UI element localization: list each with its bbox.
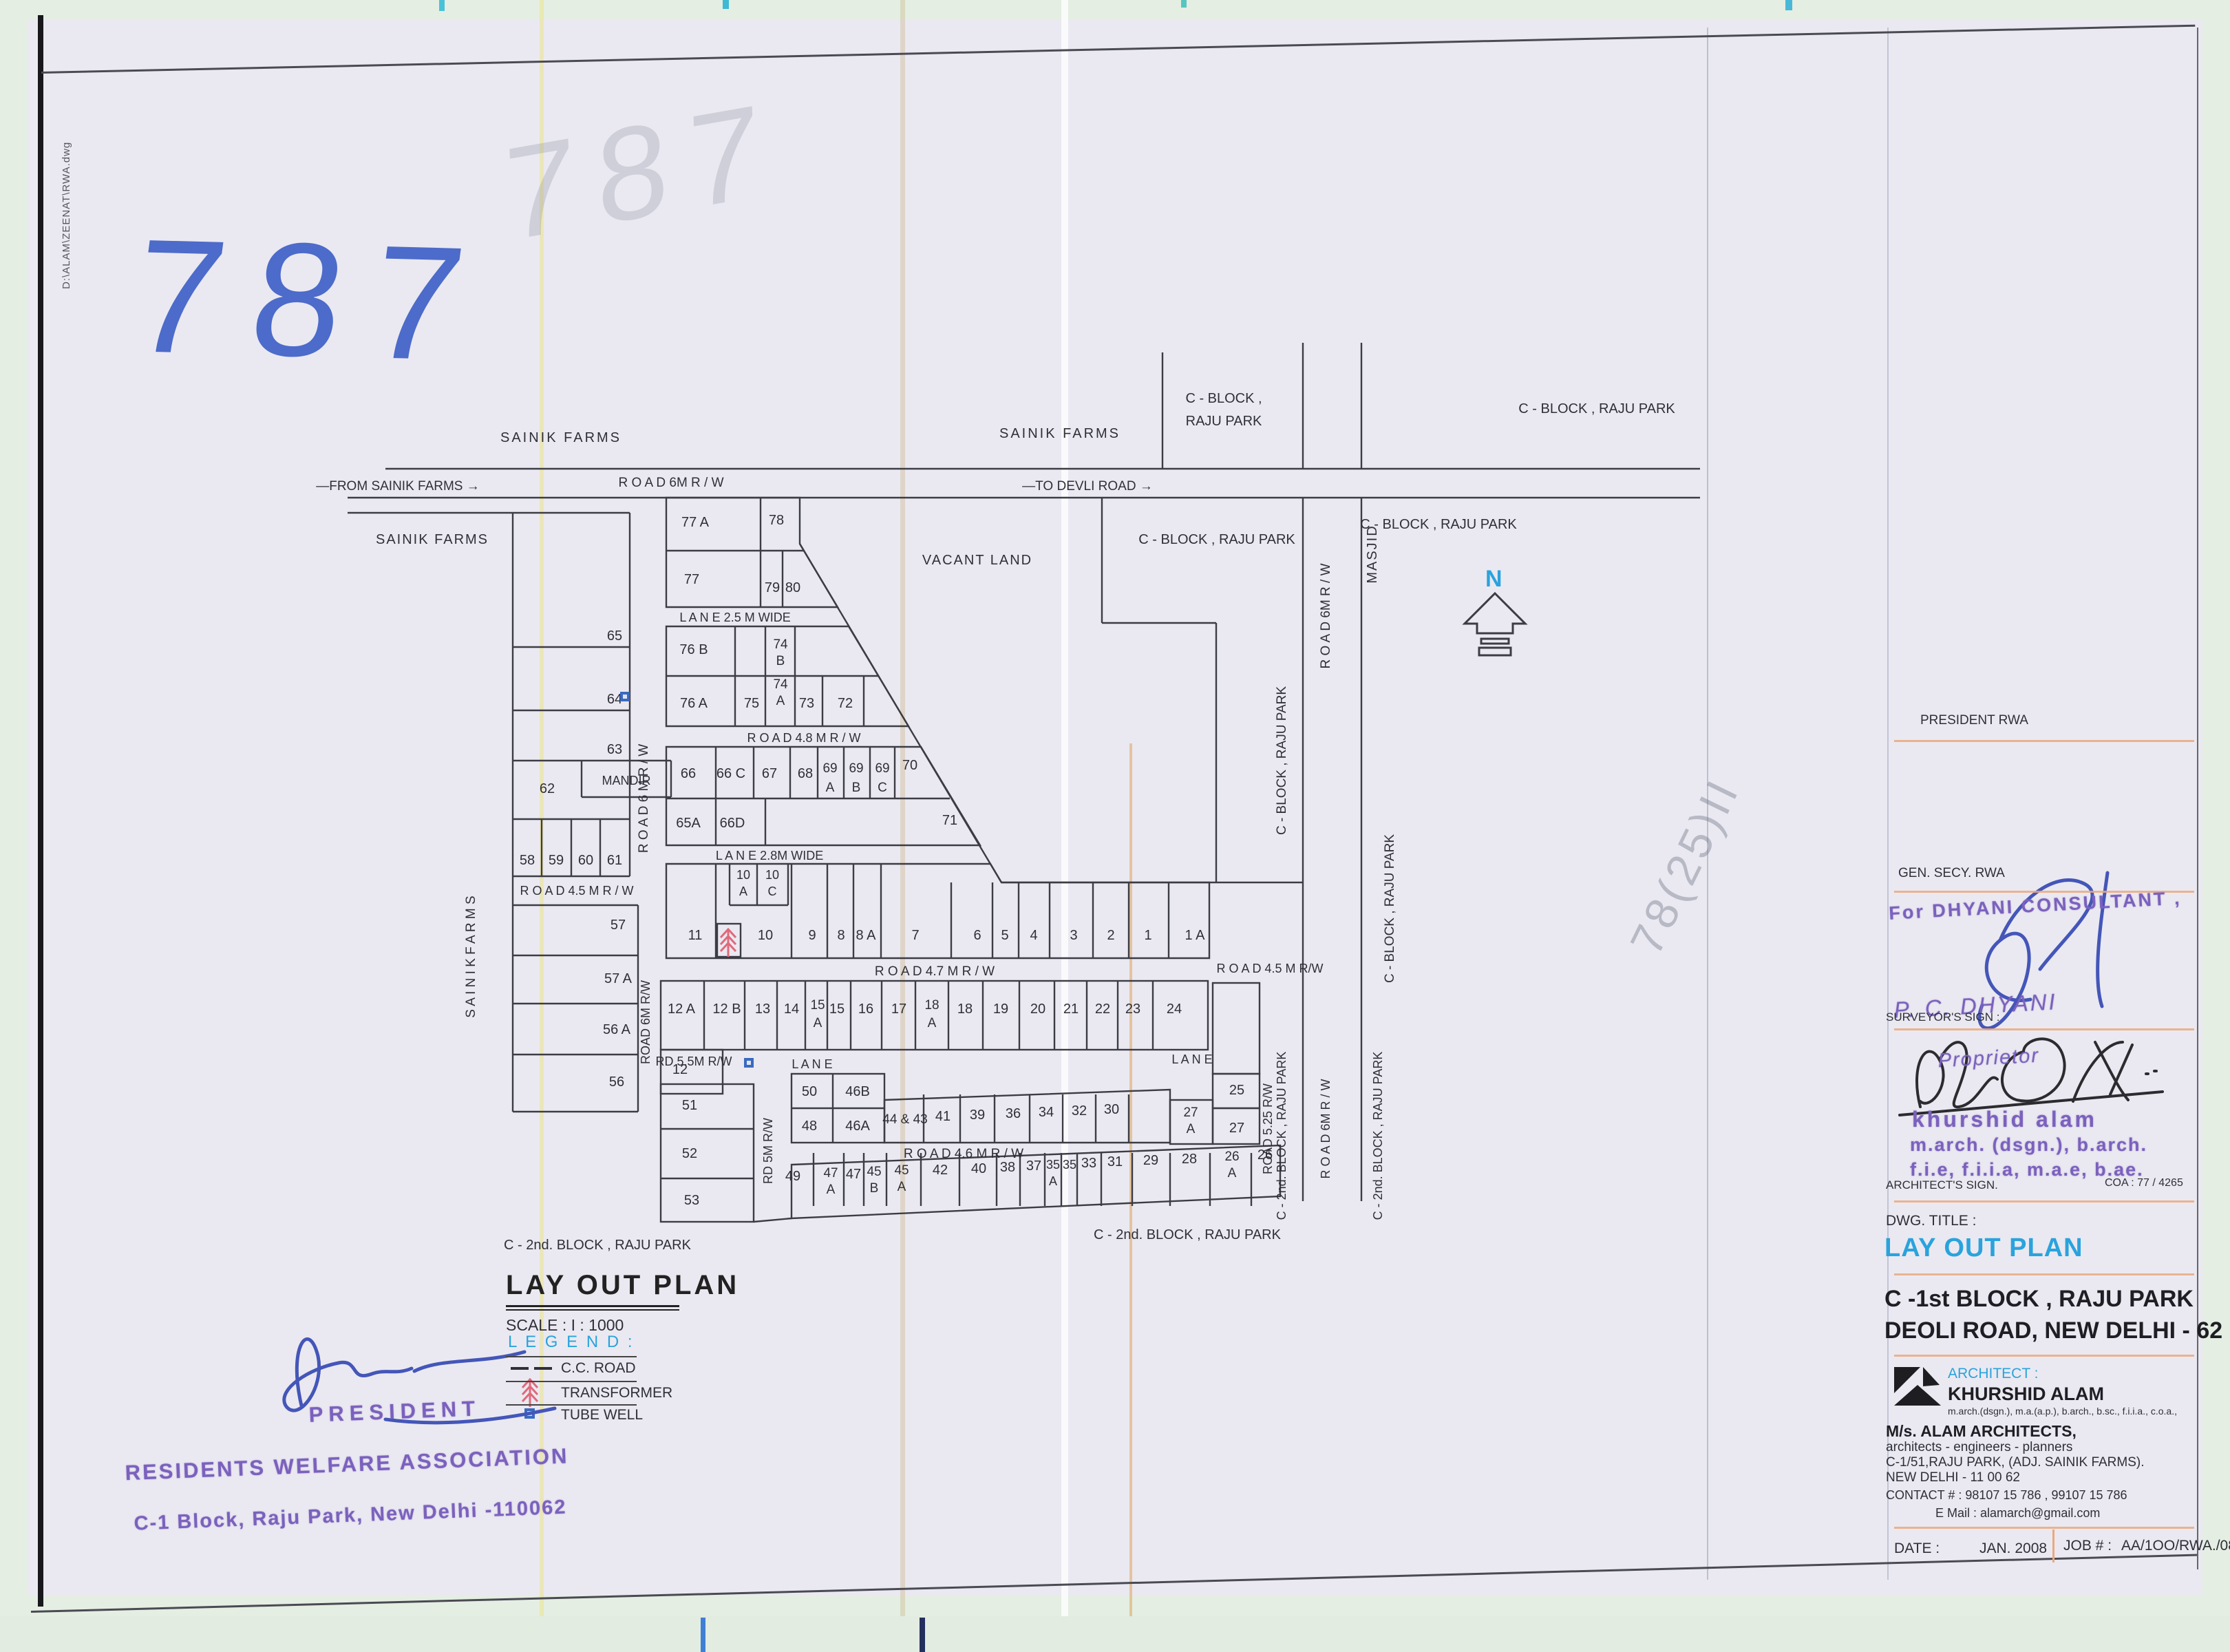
map-label: A bbox=[739, 885, 747, 898]
map-label: 80 bbox=[785, 580, 800, 595]
legend-item-label: C.C. ROAD bbox=[561, 1360, 636, 1377]
map-label: 48 bbox=[802, 1119, 817, 1134]
map-label: 7 bbox=[911, 928, 919, 943]
map-label: —TO DEVLI ROAD → bbox=[1022, 479, 1153, 494]
map-label: 15 bbox=[810, 998, 825, 1013]
map-label: 15 bbox=[829, 1002, 845, 1017]
map-label: 18 bbox=[924, 998, 939, 1013]
gen-secy-label: GEN. SECY. RWA bbox=[1898, 866, 2005, 881]
map-label: R O A D 6M R / W bbox=[1319, 563, 1333, 668]
map-label: 19 bbox=[993, 1002, 1008, 1017]
map-label: 17 bbox=[891, 1002, 906, 1017]
legend-rule-2 bbox=[506, 1381, 637, 1382]
map-label: 36 bbox=[1006, 1106, 1021, 1121]
map-label: 26 bbox=[1224, 1150, 1239, 1164]
firm-line4: NEW DELHI - 11 00 62 bbox=[1886, 1470, 2020, 1485]
map-label: R O A D 4.5 M R / W bbox=[520, 884, 633, 898]
rule-above-date bbox=[1894, 1527, 2194, 1529]
map-label: 57 bbox=[610, 918, 626, 933]
map-label: 32 bbox=[1072, 1103, 1087, 1119]
map-label: 34 bbox=[1039, 1105, 1054, 1120]
map-label: RD 5.5M R/W bbox=[655, 1055, 732, 1068]
map-label: 27 bbox=[1183, 1105, 1198, 1120]
map-label: C - BLOCK , RAJU PARK bbox=[1275, 686, 1289, 835]
email: E Mail : alamarch@gmail.com bbox=[1935, 1506, 2100, 1521]
map-label: C - 2nd. BLOCK , RAJU PARK bbox=[1094, 1227, 1282, 1242]
firm-line3: C-1/51,RAJU PARK, (ADJ. SAINIK FARMS). bbox=[1886, 1455, 2145, 1470]
job-label: JOB # : bbox=[2063, 1538, 2112, 1554]
map-line bbox=[754, 1218, 792, 1222]
map-label: 4 bbox=[1030, 928, 1037, 943]
plan-title-underline2 bbox=[506, 1309, 679, 1311]
map-label: 35 bbox=[1046, 1158, 1060, 1172]
map-label: 52 bbox=[682, 1146, 697, 1161]
map-label: C - BLOCK , RAJU PARK bbox=[1518, 401, 1675, 416]
map-label: 46A bbox=[845, 1119, 870, 1134]
map-label: 65A bbox=[676, 816, 701, 831]
map-label: A bbox=[1187, 1122, 1196, 1136]
date-job-divider bbox=[2052, 1529, 2054, 1563]
map-label: R O A D 4.7 M R / W bbox=[875, 964, 995, 979]
contact-number: CONTACT # : 98107 15 786 , 99107 15 786 bbox=[1886, 1488, 2127, 1503]
map-plot-outline bbox=[661, 1084, 754, 1222]
map-label: A bbox=[1049, 1174, 1057, 1188]
map-label: 66 C bbox=[716, 766, 745, 781]
tube-well-icon bbox=[620, 692, 630, 701]
date-label: DATE : bbox=[1894, 1540, 1940, 1557]
map-label: 31 bbox=[1107, 1154, 1123, 1169]
map-label: 33 bbox=[1081, 1156, 1096, 1171]
map-label: 61 bbox=[607, 853, 622, 868]
map-labels: SAINIK FARMSSAINIK FARMSC - BLOCK ,RAJU … bbox=[316, 391, 1675, 1253]
map-label: C - 2nd. BLOCK , RAJU PARK bbox=[504, 1238, 692, 1253]
map-label: L A N E 2.5 M WIDE bbox=[679, 611, 790, 624]
map-label: 35 bbox=[1063, 1158, 1076, 1172]
map-label: 10 bbox=[765, 868, 779, 882]
map-label: —FROM SAINIK FARMS → bbox=[316, 479, 480, 494]
alam-architects-logo bbox=[1894, 1367, 1941, 1406]
map-label: A bbox=[898, 1180, 906, 1194]
rule-above-dwg-title bbox=[1894, 1200, 2194, 1203]
map-block-outline bbox=[792, 1145, 1280, 1218]
map-label: 50 bbox=[802, 1084, 817, 1099]
map-label: 3 bbox=[1070, 928, 1077, 943]
coa-number: COA : 77 / 4265 bbox=[2105, 1177, 2183, 1189]
map-label: A bbox=[814, 1016, 822, 1030]
map-label: A bbox=[827, 1183, 836, 1197]
map-label: B bbox=[870, 1181, 879, 1196]
map-label: 76 B bbox=[679, 642, 708, 657]
map-label: 59 bbox=[549, 853, 564, 868]
map-label: 74 bbox=[773, 677, 788, 692]
dwg-title: LAY OUT PLAN bbox=[1884, 1233, 2083, 1263]
map-label: 68 bbox=[798, 766, 813, 781]
map-label: C - 2nd. BLOCK , RAJU PARK bbox=[1371, 1052, 1385, 1220]
map-label: 66D bbox=[720, 816, 745, 831]
map-label: 65 bbox=[607, 628, 622, 644]
map-label: 62 bbox=[540, 781, 555, 796]
map-label: 10 bbox=[736, 868, 750, 882]
map-label: SAINIK FARMS bbox=[376, 532, 489, 547]
project-line2: DEOLI ROAD, NEW DELHI - 62 bbox=[1884, 1317, 2222, 1344]
architect-label: ARCHITECT : bbox=[1948, 1366, 2038, 1382]
map-label: MANDIR bbox=[602, 774, 651, 787]
map-label: R O A D 6M R / W bbox=[618, 476, 723, 490]
map-label: 77 A bbox=[681, 515, 710, 530]
map-label: R O A D 4.5 M R/W bbox=[1216, 962, 1323, 975]
map-label: 69 bbox=[822, 761, 837, 776]
legend-title: L E G E N D : bbox=[508, 1333, 634, 1352]
map-label: SAINIK FARMS bbox=[500, 430, 622, 445]
map-label: 28 bbox=[1182, 1152, 1197, 1167]
map-label: 67 bbox=[762, 766, 777, 781]
map-label: 46B bbox=[845, 1084, 870, 1099]
transformer-icon bbox=[721, 929, 736, 957]
map-label: R O A D 6M R / W bbox=[1319, 1079, 1332, 1178]
map-label: 79 bbox=[765, 580, 780, 595]
map-label: 56 bbox=[609, 1074, 624, 1090]
map-label: 38 bbox=[1000, 1160, 1015, 1175]
map-label: 69 bbox=[849, 761, 863, 776]
map-label: 26 bbox=[1257, 1147, 1273, 1163]
map-plot-outline bbox=[1213, 983, 1260, 1074]
map-label: 11 bbox=[688, 928, 703, 943]
map-label: 78 bbox=[769, 513, 784, 528]
firm-name: M/s. ALAM ARCHITECTS, bbox=[1886, 1422, 2077, 1441]
map-label: L A N E 2.8M WIDE bbox=[716, 849, 823, 862]
map-label: C - BLOCK , RAJU PARK bbox=[1138, 532, 1295, 547]
map-label: 63 bbox=[607, 742, 622, 757]
map-label: 30 bbox=[1104, 1102, 1119, 1117]
map-label: VACANT LAND bbox=[922, 553, 1032, 568]
map-label: A bbox=[776, 694, 785, 708]
dwg-title-label: DWG. TITLE : bbox=[1886, 1213, 1976, 1229]
map-label: 60 bbox=[578, 853, 593, 868]
map-label: 42 bbox=[933, 1163, 948, 1178]
map-label: 41 bbox=[935, 1109, 951, 1124]
map-label: 20 bbox=[1030, 1002, 1045, 1017]
map-label: A bbox=[928, 1016, 937, 1030]
map-label: A bbox=[826, 781, 835, 795]
sign-line-surveyor bbox=[1894, 1028, 2194, 1030]
map-label: 64 bbox=[607, 692, 622, 707]
tube-well-icon bbox=[744, 1058, 754, 1068]
legend-rule-1 bbox=[506, 1356, 637, 1357]
map-label: R O A D 4.8 M R / W bbox=[747, 731, 860, 745]
map-label: 53 bbox=[684, 1193, 699, 1208]
map-label: 76 A bbox=[680, 696, 708, 711]
map-label: 72 bbox=[838, 696, 853, 711]
date-value: JAN. 2008 bbox=[1979, 1540, 2047, 1557]
map-label: 27 bbox=[1229, 1121, 1244, 1136]
map-label: 44 & 43 bbox=[882, 1112, 928, 1127]
map-label: 24 bbox=[1167, 1002, 1182, 1017]
map-label: 23 bbox=[1125, 1002, 1140, 1017]
map-label: 2 bbox=[1107, 928, 1114, 943]
map-label: L A N E bbox=[1171, 1052, 1212, 1066]
rule-below-dwg-title bbox=[1894, 1273, 2194, 1275]
map-label: 70 bbox=[902, 758, 917, 773]
map-label: L A N E bbox=[792, 1057, 832, 1071]
architect-sign-label: ARCHITECT'S SIGN. bbox=[1886, 1178, 1998, 1192]
map-label: 5 bbox=[1001, 928, 1008, 943]
map-label: 58 bbox=[520, 853, 535, 868]
map-label: 51 bbox=[682, 1098, 697, 1113]
map-label: 57 A bbox=[604, 971, 633, 986]
map-label: R O A D 4.6 M R / W bbox=[904, 1147, 1023, 1161]
map-label: 69 bbox=[875, 761, 889, 776]
map-label: 45 bbox=[867, 1165, 881, 1179]
architect-creds: m.arch.(dsgn.), m.a.(a.p.), b.arch., b.s… bbox=[1948, 1406, 2177, 1417]
map-label: B bbox=[852, 781, 861, 795]
map-label: 37 bbox=[1026, 1158, 1041, 1174]
map-label: 40 bbox=[971, 1161, 986, 1176]
architect-name: KHURSHID ALAM bbox=[1948, 1384, 2104, 1405]
map-label: 39 bbox=[970, 1108, 985, 1123]
map-label: RAJU PARK bbox=[1186, 414, 1262, 429]
north-arrow-icon bbox=[1465, 593, 1525, 655]
map-label: 47 bbox=[823, 1166, 838, 1180]
map-label: C bbox=[878, 781, 887, 795]
map-label: 1 bbox=[1144, 928, 1151, 943]
map-label: 10 bbox=[758, 928, 773, 943]
map-label: 47 bbox=[846, 1167, 861, 1182]
map-label: 13 bbox=[755, 1002, 770, 1017]
sign-line-president bbox=[1894, 740, 2194, 742]
map-label: 1 A bbox=[1185, 928, 1206, 943]
map-label: 6 bbox=[973, 928, 981, 943]
map-label: 21 bbox=[1063, 1002, 1079, 1017]
surveyor-sign-label: SURVEYOR'S SIGN : bbox=[1886, 1010, 1999, 1024]
map-label: 8 bbox=[837, 928, 845, 943]
scanned-drawing: D:\ALAM\ZEENAT\RWA.dwg 787 787 78(25)II … bbox=[0, 0, 2230, 1652]
map-label: 14 bbox=[784, 1002, 799, 1017]
plan-scale: SCALE : I : 1000 bbox=[506, 1316, 624, 1335]
map-label: C - BLOCK , bbox=[1185, 391, 1262, 406]
map-label: 73 bbox=[799, 696, 814, 711]
president-rwa-label: PRESIDENT RWA bbox=[1920, 713, 2028, 728]
map-label: 45 bbox=[894, 1163, 909, 1178]
plan-title: LAY OUT PLAN bbox=[506, 1270, 739, 1301]
map-label: MASJID bbox=[1365, 525, 1380, 583]
map-label: 71 bbox=[942, 813, 957, 828]
map-label: 8 A bbox=[856, 928, 877, 943]
map-label: 29 bbox=[1143, 1153, 1158, 1168]
map-label: 56 A bbox=[603, 1022, 631, 1037]
north-label: N bbox=[1485, 566, 1502, 593]
job-value: AA/1OO/RWA./08 bbox=[2121, 1538, 2230, 1554]
architect-stamp-creds1: m.arch. (dsgn.), b.arch. bbox=[1910, 1134, 2147, 1156]
map-label: 75 bbox=[744, 696, 759, 711]
map-label: C bbox=[768, 885, 777, 898]
map-label: S A I N I K F A R M S bbox=[464, 896, 478, 1017]
map-label: 16 bbox=[858, 1002, 873, 1017]
map-label: B bbox=[776, 654, 785, 668]
map-label: C - BLOCK , RAJU PARK bbox=[1383, 834, 1397, 983]
map-label: C - BLOCK , RAJU PARK bbox=[1360, 517, 1517, 532]
map-label: C - 2nd. BLOCK , RAJU PARK bbox=[1275, 1052, 1288, 1220]
map-label: 12 B bbox=[712, 1002, 741, 1017]
map-label: A bbox=[1228, 1166, 1237, 1180]
map-label: 49 bbox=[785, 1169, 800, 1184]
map-label: RD 5M R/W bbox=[761, 1118, 775, 1184]
project-line1: C -1st BLOCK , RAJU PARK bbox=[1884, 1286, 2194, 1313]
map-block-outline bbox=[666, 498, 838, 607]
plan-title-underline bbox=[506, 1305, 679, 1307]
map-label: 77 bbox=[684, 572, 699, 587]
map-label: 18 bbox=[957, 1002, 973, 1017]
map-label: SAINIK FARMS bbox=[999, 426, 1121, 441]
map-label: 74 bbox=[773, 637, 788, 652]
map-label: 66 bbox=[681, 766, 696, 781]
map-label: 9 bbox=[808, 928, 816, 943]
map-label: R O A D 6 M R / W bbox=[637, 744, 651, 853]
map-label: 12 A bbox=[668, 1002, 696, 1017]
map-label: ROAD 6M R/W bbox=[639, 980, 652, 1064]
architect-stamp-name: khurshid alam bbox=[1912, 1107, 2097, 1132]
firm-line2: architects - engineers - planners bbox=[1886, 1440, 2072, 1455]
rule-below-project bbox=[1894, 1355, 2194, 1357]
map-label: 22 bbox=[1095, 1002, 1110, 1017]
map-label: 25 bbox=[1229, 1083, 1244, 1098]
